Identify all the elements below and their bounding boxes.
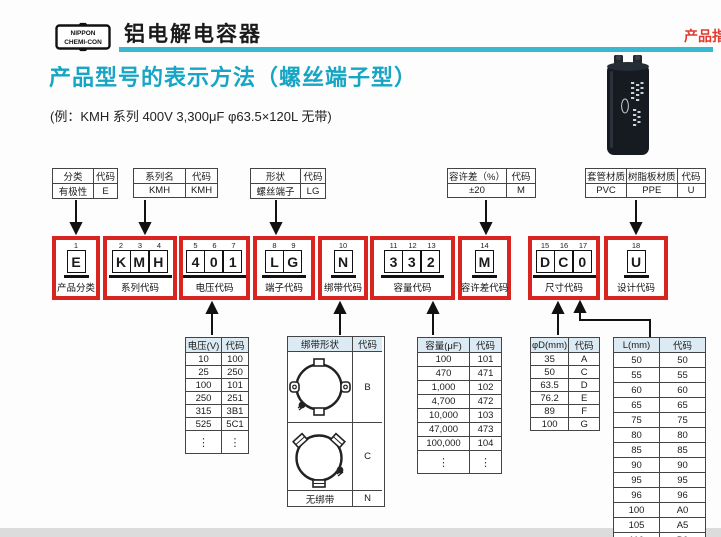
table-row: 50C xyxy=(531,366,600,379)
length-code-table: L(mm)代码505055556060656575758080858590909… xyxy=(613,337,706,537)
code-box-7: 14M容许差代码 xyxy=(458,236,511,300)
table-cell: ⋮ xyxy=(186,431,222,454)
table-row: 7575 xyxy=(614,413,706,428)
table-row: 9090 xyxy=(614,458,706,473)
code-box-3: 546071电压代码 xyxy=(179,236,250,300)
table-cell: 25 xyxy=(186,366,222,379)
table-cell: G xyxy=(569,418,600,431)
band-shape-table: 绑带形状 代码 B xyxy=(287,336,385,507)
table-header-cell: 电压(V) xyxy=(186,338,222,353)
table-row: ⋮⋮ xyxy=(418,451,502,474)
code-box-2: 2K3M4H系列代码 xyxy=(103,236,177,300)
table-row: 470471 xyxy=(418,367,502,381)
table-cell: D xyxy=(569,379,600,392)
capacitance-code-table: 容量(μF)代码1001014704711,0001024,70047210,0… xyxy=(417,337,502,474)
code-character: 4 xyxy=(186,250,205,273)
band-clamp-style-c-diagram xyxy=(288,422,352,490)
table-cell: 55 xyxy=(660,368,706,383)
table-header-cell: L(mm) xyxy=(614,338,660,353)
table-row: 8585 xyxy=(614,443,706,458)
table-row: 螺丝端子LG xyxy=(251,184,326,199)
code-box-label: 绑带代码 xyxy=(324,280,362,294)
table-row: 100,000104 xyxy=(418,437,502,451)
table-row: PVCPPEU xyxy=(586,184,706,198)
table-cell: 47,000 xyxy=(418,423,470,437)
table-cell: 473 xyxy=(470,423,502,437)
table-row: 35A xyxy=(531,353,600,366)
table-row: 8080 xyxy=(614,428,706,443)
table-cell: 100 xyxy=(614,503,660,518)
digit-position-number: 2 xyxy=(119,241,123,250)
table-header-cell: 容量(μF) xyxy=(418,338,470,353)
table-row: 9595 xyxy=(614,473,706,488)
table-cell: 63.5 xyxy=(531,379,569,392)
table-header-cell: 容许差（%） xyxy=(448,169,507,184)
table-cell: 螺丝端子 xyxy=(251,184,301,199)
code-character: K xyxy=(112,250,131,273)
band-code-c: C xyxy=(352,422,382,490)
table-cell: 60 xyxy=(660,383,706,398)
table-cell: 315 xyxy=(186,405,222,418)
table-cell: 80 xyxy=(614,428,660,443)
code-box-label: 设计代码 xyxy=(617,280,655,294)
table-cell: 472 xyxy=(470,395,502,409)
spec-label-table-material: 套管材质树脂板材质代码PVCPPEU xyxy=(585,168,706,198)
diameter-code-table: φD(mm)代码35A50C63.5D76.2E89F100G xyxy=(530,337,600,431)
digit-position-number: 6 xyxy=(212,241,216,250)
logo-text-line1: NIPPON xyxy=(71,30,96,37)
code-box-label: 电压代码 xyxy=(195,280,233,294)
digit-position-number: 8 xyxy=(272,241,276,250)
table-cell: PVC xyxy=(586,184,627,198)
table-row: 100G xyxy=(531,418,600,431)
table-cell: 35 xyxy=(531,353,569,366)
table-row: 6565 xyxy=(614,398,706,413)
model-code-row: 1E产品分类2K3M4H系列代码546071电压代码8L9G端子代码10N绑带代… xyxy=(0,236,721,300)
table-cell: ⋮ xyxy=(470,451,502,474)
table-cell: 80 xyxy=(660,428,706,443)
corner-section-label: 产品指 xyxy=(684,26,721,46)
digit-position-number: 5 xyxy=(193,241,197,250)
table-header-cell: φD(mm) xyxy=(531,338,569,353)
table-header-cell: 代码 xyxy=(470,338,502,353)
code-character: 1 xyxy=(223,250,242,273)
code-character: L xyxy=(265,250,284,273)
table-row: 有极性E xyxy=(53,184,118,199)
table-header-cell: 分类 xyxy=(53,169,94,184)
table-cell: LG xyxy=(301,184,326,199)
table-cell: ⋮ xyxy=(418,451,470,474)
table-cell: 90 xyxy=(660,458,706,473)
table-cell: 100 xyxy=(531,418,569,431)
code-character: 3 xyxy=(402,250,421,273)
table-cell: 95 xyxy=(614,473,660,488)
table-cell: 96 xyxy=(614,488,660,503)
code-box-label: 容许差代码 xyxy=(461,280,509,294)
digit-position-number: 4 xyxy=(157,241,161,250)
table-cell: B0 xyxy=(660,533,706,537)
code-character: D xyxy=(536,250,555,273)
table-cell: 75 xyxy=(660,413,706,428)
table-cell: 50 xyxy=(660,353,706,368)
table-row: 5555 xyxy=(614,368,706,383)
catalog-page: NIPPON CHEMI-CON 铝电解电容器 产品指 产品型号的表示方法（螺丝… xyxy=(0,0,721,537)
code-box-9: 18U设计代码 xyxy=(604,236,668,300)
voltage-code-table: 电压(V)代码10100252501001012502513153B15255C… xyxy=(185,337,249,454)
table-cell: 103 xyxy=(470,409,502,423)
table-header-cell: 代码 xyxy=(506,169,535,184)
table-cell: A xyxy=(569,353,600,366)
code-character: M xyxy=(475,250,494,273)
table-row: 3153B1 xyxy=(186,405,249,418)
code-box-label: 系列代码 xyxy=(121,280,159,294)
band-table-header-shape: 绑带形状 xyxy=(288,337,352,351)
table-cell: 250 xyxy=(222,366,249,379)
code-box-label: 产品分类 xyxy=(57,280,95,294)
table-row: 6060 xyxy=(614,383,706,398)
code-box-5: 10N绑带代码 xyxy=(318,236,368,300)
table-header-cell: 代码 xyxy=(94,169,118,184)
table-cell: A5 xyxy=(660,518,706,533)
page-heading: 产品型号的表示方法（螺丝端子型） xyxy=(49,60,417,92)
product-title: 铝电解电容器 xyxy=(124,18,262,48)
digit-position-number: 17 xyxy=(579,241,587,250)
code-box-4: 8L9G端子代码 xyxy=(253,236,315,300)
table-cell: A0 xyxy=(660,503,706,518)
table-row: 63.5D xyxy=(531,379,600,392)
digit-position-number: 9 xyxy=(291,241,295,250)
code-box-1: 1E产品分类 xyxy=(52,236,100,300)
table-cell: 470 xyxy=(418,367,470,381)
table-cell: 1,000 xyxy=(418,381,470,395)
table-cell: KMH xyxy=(186,184,218,198)
table-row: 100A0 xyxy=(614,503,706,518)
table-cell: 85 xyxy=(614,443,660,458)
code-box-label: 容量代码 xyxy=(393,280,431,294)
band-code-n: N xyxy=(352,490,382,506)
table-cell: ⋮ xyxy=(222,431,249,454)
table-cell: 85 xyxy=(660,443,706,458)
example-line: (例：KMH 系列 400V 3,300μF φ63.5×120L 无带) xyxy=(50,106,332,125)
table-cell: 65 xyxy=(660,398,706,413)
table-cell: 10 xyxy=(186,353,222,366)
table-cell: 3B1 xyxy=(222,405,249,418)
table-cell: ±20 xyxy=(448,184,507,198)
table-cell: 100 xyxy=(186,379,222,392)
table-cell: 有极性 xyxy=(53,184,94,199)
code-character: U xyxy=(627,250,646,273)
table-row: 25250 xyxy=(186,366,249,379)
digit-position-number: 1 xyxy=(74,241,78,250)
table-header-cell: 树脂板材质 xyxy=(627,169,678,184)
digit-position-number: 11 xyxy=(390,241,398,250)
table-cell: 65 xyxy=(614,398,660,413)
code-character: 0 xyxy=(573,250,592,273)
table-header-cell: 代码 xyxy=(660,338,706,353)
table-cell: 525 xyxy=(186,418,222,431)
capacitor-photo xyxy=(604,54,652,163)
table-cell: 471 xyxy=(470,367,502,381)
table-cell: KMH xyxy=(134,184,186,198)
table-row: 105A5 xyxy=(614,518,706,533)
table-cell: U xyxy=(677,184,705,198)
table-header-cell: 代码 xyxy=(222,338,249,353)
table-cell: 96 xyxy=(660,488,706,503)
band-code-b: B xyxy=(352,351,382,422)
table-cell: 100 xyxy=(222,353,249,366)
table-row: 1,000102 xyxy=(418,381,502,395)
table-cell: 101 xyxy=(222,379,249,392)
table-cell: 100 xyxy=(418,353,470,367)
table-cell: 102 xyxy=(470,381,502,395)
band-none-label: 无绑带 xyxy=(288,490,352,506)
digit-position-number: 10 xyxy=(339,241,347,250)
table-cell: 5C1 xyxy=(222,418,249,431)
table-cell: C xyxy=(569,366,600,379)
code-box-label: 端子代码 xyxy=(265,280,303,294)
table-cell: 110 xyxy=(614,533,660,537)
table-cell: 104 xyxy=(470,437,502,451)
table-cell: 55 xyxy=(614,368,660,383)
table-row: 10,000103 xyxy=(418,409,502,423)
band-table-header-code: 代码 xyxy=(352,337,382,351)
table-row: 10100 xyxy=(186,353,249,366)
digit-position-number: 15 xyxy=(541,241,549,250)
table-cell: 60 xyxy=(614,383,660,398)
table-row: 47,000473 xyxy=(418,423,502,437)
table-cell: 95 xyxy=(660,473,706,488)
table-header-cell: 代码 xyxy=(677,169,705,184)
table-row: 110B0 xyxy=(614,533,706,537)
code-box-6: 113123132容量代码 xyxy=(370,236,455,300)
table-row: KMHKMH xyxy=(134,184,218,198)
spec-label-table-series: 系列名代码KMHKMH xyxy=(133,168,218,198)
table-cell: PPE xyxy=(627,184,678,198)
table-cell: 100,000 xyxy=(418,437,470,451)
code-character: E xyxy=(67,250,86,273)
digit-position-number: 13 xyxy=(427,241,435,250)
table-header-cell: 套管材质 xyxy=(586,169,627,184)
band-clamp-style-b-diagram xyxy=(288,351,352,422)
table-header-cell: 形状 xyxy=(251,169,301,184)
digit-position-number: 14 xyxy=(480,241,488,250)
table-row: 100101 xyxy=(186,379,249,392)
table-cell: 101 xyxy=(470,353,502,367)
table-cell: 251 xyxy=(222,392,249,405)
spec-label-table-category: 分类代码有极性E xyxy=(52,168,118,199)
table-cell: 50 xyxy=(531,366,569,379)
digit-position-number: 7 xyxy=(231,241,235,250)
code-character: 3 xyxy=(384,250,403,273)
table-row: 76.2E xyxy=(531,392,600,405)
table-header-cell: 系列名 xyxy=(134,169,186,184)
table-row: 250251 xyxy=(186,392,249,405)
table-row: 5050 xyxy=(614,353,706,368)
table-row: ±20M xyxy=(448,184,536,198)
code-character: C xyxy=(554,250,573,273)
logo-text-line2: CHEMI-CON xyxy=(64,39,102,46)
table-header-cell: 代码 xyxy=(569,338,600,353)
table-row: 4,700472 xyxy=(418,395,502,409)
table-row: ⋮⋮ xyxy=(186,431,249,454)
code-character: H xyxy=(149,250,168,273)
table-header-cell: 代码 xyxy=(301,169,326,184)
table-cell: M xyxy=(506,184,535,198)
table-cell: 250 xyxy=(186,392,222,405)
code-box-8: 15D16C170尺寸代码 xyxy=(528,236,600,300)
table-cell: 76.2 xyxy=(531,392,569,405)
table-cell: 89 xyxy=(531,405,569,418)
table-cell: 90 xyxy=(614,458,660,473)
nippon-chemicon-logo: NIPPON CHEMI-CON xyxy=(55,22,111,57)
table-cell: E xyxy=(569,392,600,405)
table-cell: 105 xyxy=(614,518,660,533)
table-cell: 75 xyxy=(614,413,660,428)
spec-label-table-tolerance: 容许差（%）代码±20M xyxy=(447,168,536,198)
table-cell: 50 xyxy=(614,353,660,368)
code-character: N xyxy=(334,250,353,273)
spec-label-table-shape: 形状代码螺丝端子LG xyxy=(250,168,326,199)
code-character: 0 xyxy=(204,250,223,273)
code-character: 2 xyxy=(421,250,440,273)
digit-position-number: 16 xyxy=(560,241,568,250)
digit-position-number: 3 xyxy=(138,241,142,250)
table-row: 100101 xyxy=(418,353,502,367)
code-box-label: 尺寸代码 xyxy=(545,280,583,294)
code-character: M xyxy=(130,250,149,273)
header-rule xyxy=(119,47,713,52)
table-cell: 10,000 xyxy=(418,409,470,423)
digit-position-number: 12 xyxy=(408,241,416,250)
table-cell: 4,700 xyxy=(418,395,470,409)
table-row: 9696 xyxy=(614,488,706,503)
table-cell: F xyxy=(569,405,600,418)
digit-position-number: 18 xyxy=(632,241,640,250)
table-header-cell: 代码 xyxy=(186,169,218,184)
table-cell: E xyxy=(94,184,118,199)
table-row: 89F xyxy=(531,405,600,418)
code-character: G xyxy=(283,250,302,273)
table-row: 5255C1 xyxy=(186,418,249,431)
